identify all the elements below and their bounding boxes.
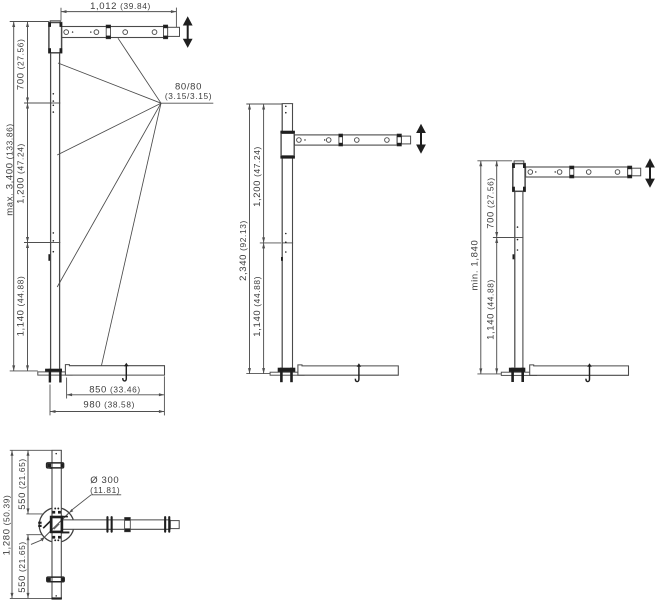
svg-text:550 (21.65): 550 (21.65) bbox=[17, 541, 28, 593]
svg-text:(11.81): (11.81) bbox=[90, 485, 120, 495]
svg-text:980 (38.58): 980 (38.58) bbox=[83, 399, 135, 410]
svg-text:1,200 (47.24): 1,200 (47.24) bbox=[252, 146, 263, 207]
svg-text:1,200 (47.24): 1,200 (47.24) bbox=[16, 143, 27, 204]
svg-text:1,280 (50.39): 1,280 (50.39) bbox=[1, 495, 12, 556]
svg-text:1,140 (44.88): 1,140 (44.88) bbox=[485, 279, 496, 340]
svg-text:550 (21.65): 550 (21.65) bbox=[17, 458, 28, 510]
svg-text:1,012 (39.84): 1,012 (39.84) bbox=[90, 1, 151, 12]
svg-text:700 (27.56): 700 (27.56) bbox=[485, 177, 496, 229]
svg-text:850 (33.46): 850 (33.46) bbox=[89, 384, 141, 395]
svg-text:1,140 (44.88): 1,140 (44.88) bbox=[16, 276, 27, 337]
svg-text:min. 1,840: min. 1,840 bbox=[470, 240, 481, 291]
svg-text:700 (27.56): 700 (27.56) bbox=[16, 38, 27, 90]
svg-text:1,140 (44.88): 1,140 (44.88) bbox=[252, 276, 263, 337]
svg-text:max. 3,400 (133.86): max. 3,400 (133.86) bbox=[5, 123, 16, 216]
svg-text:2,340 (92.13): 2,340 (92.13) bbox=[238, 220, 249, 281]
svg-text:(3.15/3.15): (3.15/3.15) bbox=[165, 91, 212, 101]
